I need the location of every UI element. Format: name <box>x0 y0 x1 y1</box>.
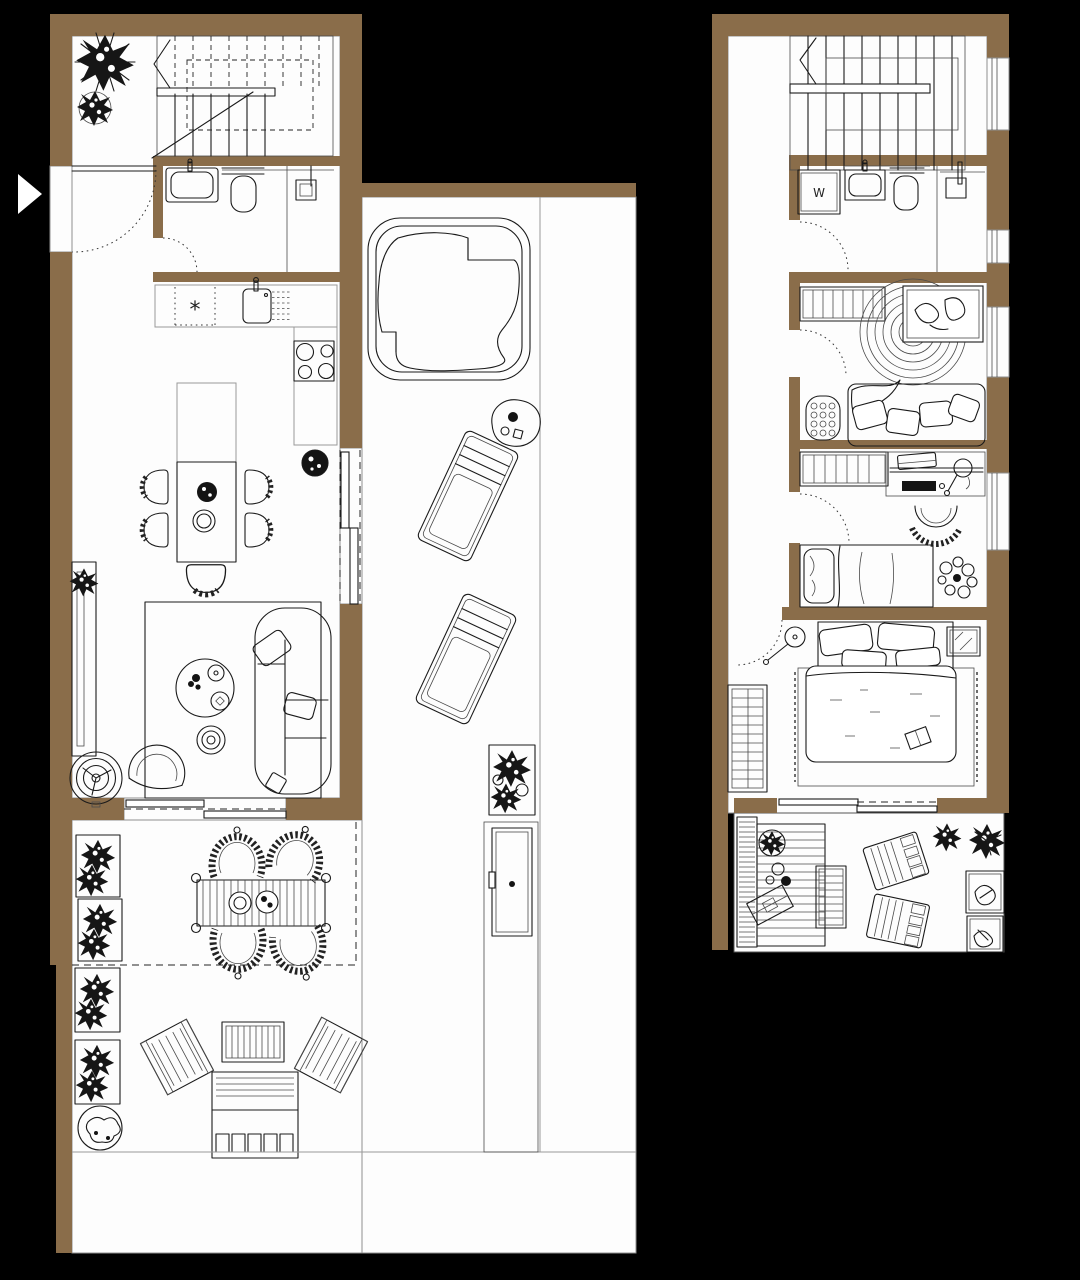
window <box>987 473 1009 550</box>
upper-floor-plan: W <box>712 14 1009 952</box>
deck-plant <box>759 830 785 856</box>
floor-plan-sheet: * <box>0 0 1080 1280</box>
washer-label: W <box>813 186 825 200</box>
potted-plant <box>302 450 328 476</box>
double-bed <box>806 622 956 762</box>
kitchen-symbol: * <box>190 298 201 323</box>
pool-terrace-floor <box>362 197 636 1253</box>
ground-interior-floor <box>72 36 340 798</box>
entrance-arrow <box>18 174 42 214</box>
roof-terrace-floor <box>734 813 1004 952</box>
entrance-recess <box>50 166 72 252</box>
window <box>987 58 1009 130</box>
window <box>987 230 1009 263</box>
keyboard <box>902 481 936 491</box>
ground-floor-plan: * <box>18 14 636 1253</box>
window <box>987 307 1009 377</box>
wall-art <box>903 286 983 342</box>
floor-plan-drawing: * <box>0 0 1080 1280</box>
